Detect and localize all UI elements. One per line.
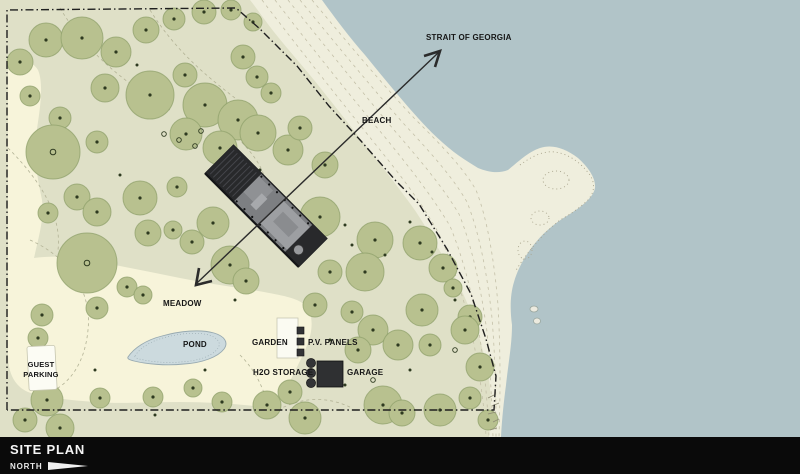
sapling-dot — [454, 299, 457, 302]
tree-trunk-marker — [58, 116, 61, 119]
tree-trunk-marker — [148, 93, 151, 96]
tree-trunk-marker — [381, 403, 384, 406]
tree-trunk-marker — [28, 94, 31, 97]
sapling-dot — [409, 369, 412, 372]
tree-trunk-marker — [151, 395, 154, 398]
tree-trunk-marker — [184, 132, 187, 135]
tree-trunk-marker — [441, 266, 444, 269]
tree-trunk-marker — [191, 386, 194, 389]
tree-trunk-marker — [420, 308, 423, 311]
tree-trunk-marker — [75, 195, 78, 198]
tree-trunk-marker — [95, 210, 98, 213]
label-pond: POND — [183, 340, 207, 349]
tree-trunk-marker — [203, 103, 206, 106]
tree-trunk-marker — [40, 313, 43, 316]
tree-trunk-marker — [313, 303, 316, 306]
tree-trunk-marker — [486, 418, 489, 421]
tree-trunk-marker — [202, 10, 205, 13]
tree-trunk-marker — [183, 73, 186, 76]
sapling-dot — [136, 64, 139, 67]
tree-trunk-marker — [303, 416, 306, 419]
tree-trunk-marker — [356, 348, 359, 351]
label-guest-parking-line2: PARKING — [23, 370, 58, 379]
tree-trunk-marker — [80, 36, 83, 39]
tree-trunk-marker — [363, 270, 366, 273]
sapling-dot — [431, 251, 434, 254]
tree-trunk-marker — [468, 396, 471, 399]
tree-trunk-marker — [418, 241, 421, 244]
tree-trunk-marker — [23, 418, 26, 421]
tree-trunk-marker — [211, 221, 214, 224]
tree-trunk-marker — [220, 400, 223, 403]
label-h2o-storage: H2O STORAGE — [253, 368, 314, 377]
tree-trunk-marker — [190, 240, 193, 243]
tree-trunk-marker — [114, 50, 117, 53]
sapling-dot — [384, 254, 387, 257]
north-label: NORTH — [10, 462, 42, 471]
tree-trunk-marker — [255, 75, 258, 78]
tree-trunk-marker — [46, 211, 49, 214]
label-pv-panels: P.V. PANELS — [308, 338, 358, 347]
north-arrow-icon — [46, 460, 92, 472]
tree-trunk-marker — [265, 403, 268, 406]
tree-trunk-marker — [298, 126, 301, 129]
north-indicator: NORTH — [10, 460, 92, 472]
sapling-dot — [154, 414, 157, 417]
tree-trunk-marker — [286, 148, 289, 151]
tree-trunk-marker — [373, 238, 376, 241]
tree-trunk-marker — [144, 28, 147, 31]
tree-trunk-marker — [218, 146, 221, 149]
tree-trunk-marker — [141, 293, 144, 296]
tree-trunk-marker — [172, 17, 175, 20]
tree-trunk-marker — [371, 328, 374, 331]
tree-trunk-marker — [175, 185, 178, 188]
tree-trunk-marker — [171, 228, 174, 231]
sapling-dot — [234, 299, 237, 302]
label-garden: GARDEN — [252, 338, 288, 347]
tree-trunk-marker — [323, 163, 326, 166]
tree-trunk-marker — [228, 263, 231, 266]
tree-trunk-marker — [146, 231, 149, 234]
tree-trunk-marker — [288, 390, 291, 393]
tree-trunk-marker — [256, 131, 259, 134]
tree-trunk-marker — [36, 336, 39, 339]
pv-panel-array — [297, 327, 304, 356]
site-plan-map: STRAIT OF GEORGIA BEACH MEADOW POND GARD… — [0, 0, 800, 437]
tree-trunk-marker — [269, 91, 272, 94]
tree-trunk-marker — [400, 411, 403, 414]
tree-trunk-marker — [103, 86, 106, 89]
page-title: SITE PLAN — [10, 442, 85, 457]
garage-building — [317, 361, 343, 387]
tree-trunk-marker — [95, 306, 98, 309]
sapling-dot — [409, 221, 412, 224]
tree-trunk-marker — [18, 60, 21, 63]
sapling-dot — [344, 384, 347, 387]
tree-trunk-marker — [44, 38, 47, 41]
label-beach: BEACH — [362, 116, 391, 125]
tree-trunk-marker — [428, 343, 431, 346]
site-plan-canvas: STRAIT OF GEORGIA BEACH MEADOW POND GARD… — [0, 0, 800, 474]
tree-trunk-marker — [125, 285, 128, 288]
sapling-dot — [94, 369, 97, 372]
tree-trunk-marker — [318, 215, 321, 218]
sapling-dot — [344, 224, 347, 227]
tree-trunk-marker — [98, 396, 101, 399]
tree-canopy — [46, 414, 74, 437]
tree-trunk-marker — [328, 270, 331, 273]
tree-trunk-marker — [229, 8, 232, 11]
label-meadow: MEADOW — [163, 299, 202, 308]
label-strait-of-georgia: STRAIT OF GEORGIA — [426, 33, 512, 42]
tree-trunk-marker — [236, 118, 239, 121]
tree-trunk-marker — [463, 328, 466, 331]
label-guest-parking-line1: GUEST — [28, 360, 55, 369]
sapling-dot — [351, 244, 354, 247]
tree-canopy — [57, 233, 117, 293]
tree-trunk-marker — [478, 365, 481, 368]
tree-trunk-marker — [350, 310, 353, 313]
label-garage: GARAGE — [347, 368, 384, 377]
tree-canopy — [26, 125, 80, 179]
tree-trunk-marker — [95, 140, 98, 143]
tree-trunk-marker — [138, 196, 141, 199]
footer-bar: SITE PLAN NORTH — [0, 437, 800, 474]
tree-trunk-marker — [45, 398, 48, 401]
sapling-dot — [119, 174, 122, 177]
sapling-dot — [204, 369, 207, 372]
tree-trunk-marker — [396, 343, 399, 346]
tree-trunk-marker — [451, 286, 454, 289]
tree-trunk-marker — [58, 426, 61, 429]
tree-trunk-marker — [244, 279, 247, 282]
tree-trunk-marker — [241, 55, 244, 58]
